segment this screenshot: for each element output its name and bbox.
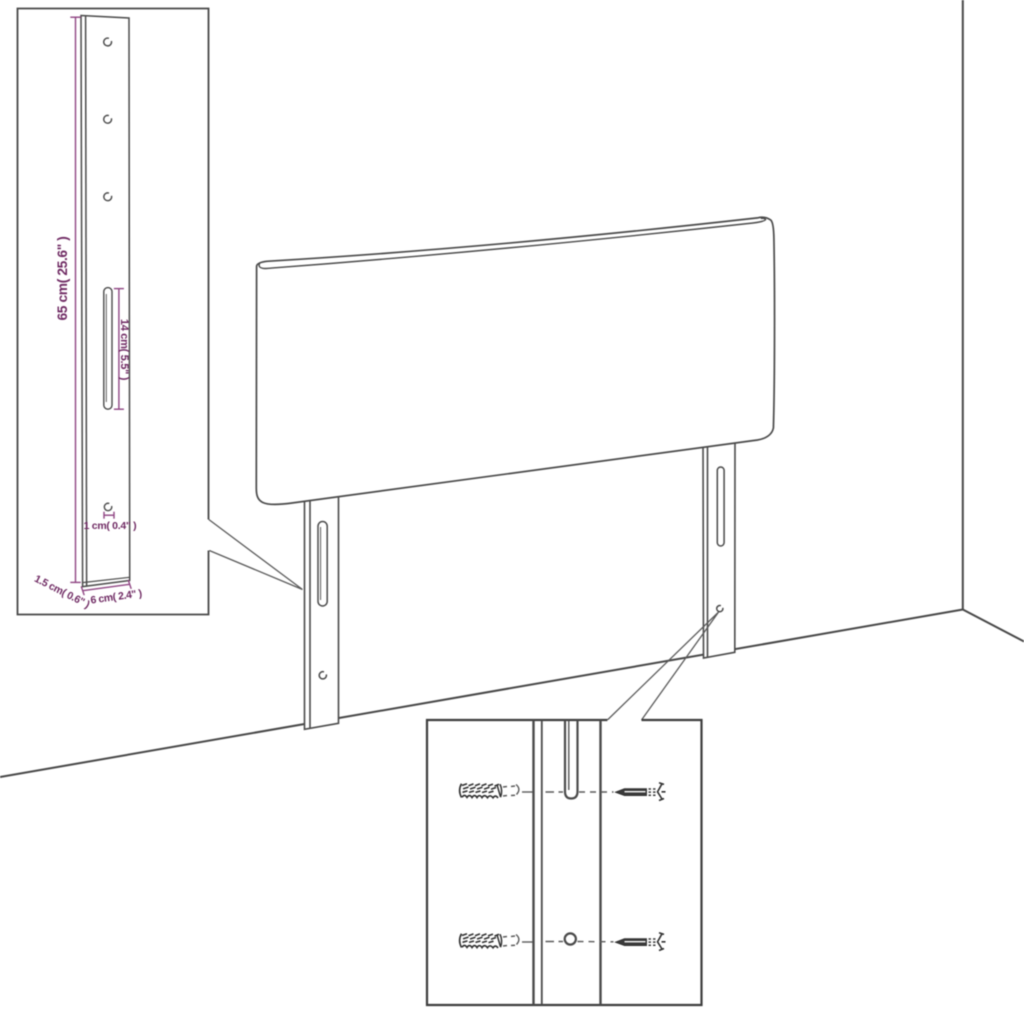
svg-text:1 cm( 0.4" ): 1 cm( 0.4" ) <box>84 520 137 532</box>
svg-text:14 cm( 5.5" ): 14 cm( 5.5" ) <box>118 319 130 381</box>
svg-text:65 cm( 25.6" ): 65 cm( 25.6" ) <box>55 236 70 320</box>
